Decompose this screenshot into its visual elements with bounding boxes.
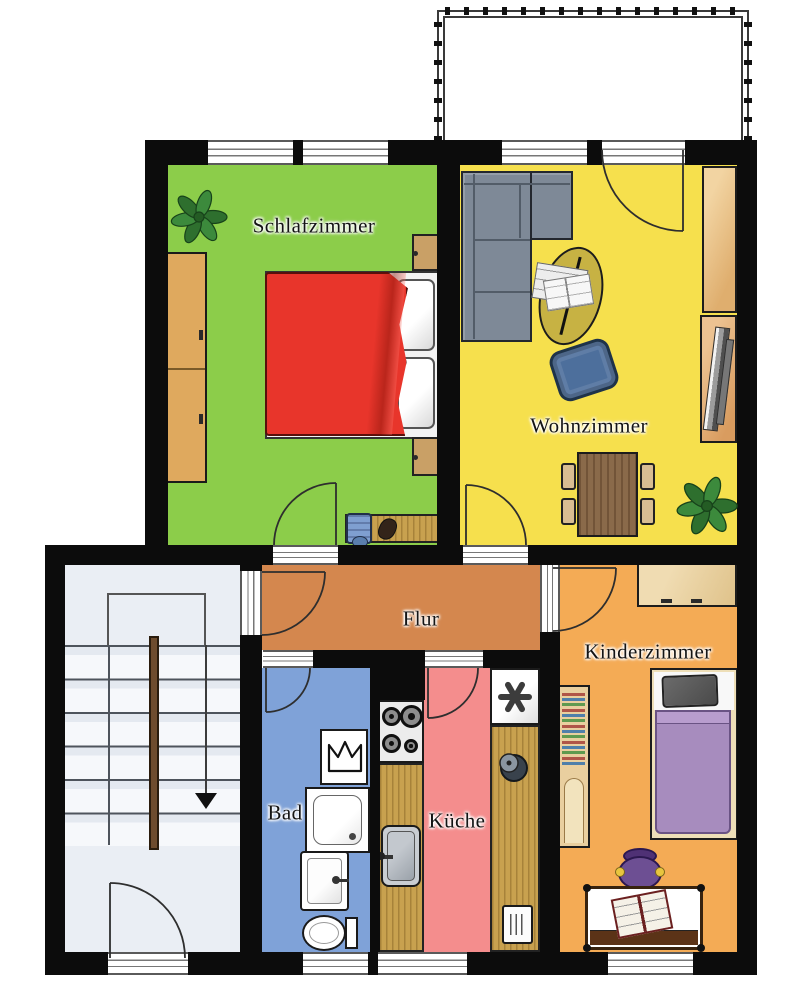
wall <box>693 952 757 975</box>
desk-chair <box>346 513 372 544</box>
wall <box>587 140 602 165</box>
stair-direction-arrow-down <box>195 793 217 809</box>
blanket-fold <box>657 712 729 724</box>
stove-burner <box>400 705 423 728</box>
sofa-seam <box>473 174 475 339</box>
stove-burner <box>382 707 401 726</box>
dresser-handle <box>661 599 672 603</box>
kitchen-sink <box>381 825 421 887</box>
wall <box>540 632 560 952</box>
basin-faucet-knob <box>332 876 340 884</box>
dining-chair <box>640 463 655 490</box>
floor-flur <box>262 565 540 650</box>
radiator-fins <box>510 914 525 935</box>
desk-knob <box>583 944 591 952</box>
window-schlafzimmer-1 <box>208 140 293 165</box>
stair-handrail <box>149 636 159 850</box>
door-threshold-schlafzimmer <box>273 545 338 565</box>
window-wohnzimmer <box>502 140 587 165</box>
sofa-seam <box>464 183 570 185</box>
door-threshold-bad <box>263 650 313 668</box>
books <box>562 693 585 765</box>
radiator <box>502 905 533 944</box>
desk-knob <box>583 884 591 892</box>
dining-table <box>577 452 638 537</box>
shower <box>305 787 370 853</box>
sofa-body <box>461 171 532 342</box>
wall <box>45 952 108 975</box>
balcony-rail-posts-top <box>445 7 741 15</box>
wall <box>188 952 303 975</box>
wall <box>313 650 425 668</box>
bag-on-desk <box>375 516 399 543</box>
shower-drain <box>349 833 356 840</box>
dining-chair <box>640 498 655 525</box>
wardrobe-divider <box>167 368 205 370</box>
wall <box>293 140 303 165</box>
wall <box>240 635 262 955</box>
wall <box>338 545 463 565</box>
armrest <box>655 867 665 877</box>
double-bed <box>265 271 443 439</box>
room-label-kueche: Küche <box>429 809 486 834</box>
dresser <box>637 562 737 607</box>
toilet-bowl-inner <box>309 922 339 944</box>
wall <box>378 668 425 700</box>
stove-burner <box>382 734 401 753</box>
sofa-seam <box>519 183 521 238</box>
balcony-door-threshold <box>602 140 685 165</box>
balcony-rail-posts-right <box>744 22 752 147</box>
room-label-kinderzimmer: Kinderzimmer <box>584 640 711 665</box>
wall <box>467 952 608 975</box>
room-label-schlafzimmer: Schlafzimmer <box>253 214 376 239</box>
tv-lowboard <box>700 315 737 443</box>
pillow <box>661 674 718 708</box>
sofa-seam <box>473 291 530 293</box>
nightstand-knob <box>413 251 418 256</box>
wall <box>368 952 378 975</box>
purple-blanket <box>655 710 731 834</box>
nightstand-knob <box>413 455 418 460</box>
door-threshold-wohnzimmer <box>463 545 528 565</box>
freezer <box>490 668 540 725</box>
wall <box>145 140 208 165</box>
sideboard <box>702 166 737 313</box>
toilet-bowl <box>302 915 346 951</box>
balcony-inner-rail <box>443 16 743 157</box>
bookshelf <box>557 685 590 848</box>
shelf-arch <box>564 778 584 843</box>
kids-desk <box>585 886 703 950</box>
armrest <box>615 867 625 877</box>
wall <box>437 140 460 565</box>
wall <box>45 545 273 565</box>
window-bad <box>303 952 368 975</box>
sofa-seam <box>473 239 530 241</box>
window-kueche <box>378 952 467 975</box>
wall <box>45 545 65 975</box>
dining-chair <box>561 463 576 490</box>
balcony-rail-posts-left <box>434 22 442 147</box>
stair-walk-line <box>205 645 207 793</box>
dresser-handle <box>691 599 702 603</box>
door-threshold-apartment-entrance <box>240 571 262 635</box>
kids-chair <box>618 856 662 890</box>
wash-basin <box>300 851 349 911</box>
door-threshold-kinderzimmer <box>540 565 560 632</box>
room-label-flur: Flur <box>403 607 440 632</box>
single-bed <box>650 668 738 840</box>
washing-machine <box>320 729 368 785</box>
room-label-bad: Bad <box>267 801 302 826</box>
wall <box>370 668 380 952</box>
window-kinderzimmer <box>608 952 693 975</box>
wall <box>528 545 757 565</box>
stair-flight-divider-line <box>108 645 110 845</box>
wardrobe-handle <box>199 330 203 340</box>
desk-knob <box>697 944 705 952</box>
window-schlafzimmer-2 <box>303 140 388 165</box>
floor-plan: Schlafzimmer Wohnzimmer Flur Bad Küche K… <box>0 0 794 1000</box>
wall <box>145 140 168 545</box>
door-threshold-building-entrance <box>108 952 188 975</box>
wardrobe <box>165 252 207 483</box>
dining-chair <box>561 498 576 525</box>
toilet <box>302 915 358 952</box>
stove-burner <box>404 739 418 753</box>
toilet-tank <box>345 917 358 949</box>
door-threshold-kueche <box>425 650 483 668</box>
desk-knob <box>697 884 705 892</box>
wardrobe-handle <box>199 414 203 424</box>
room-label-wohnzimmer: Wohnzimmer <box>530 414 648 439</box>
stove <box>378 700 424 763</box>
